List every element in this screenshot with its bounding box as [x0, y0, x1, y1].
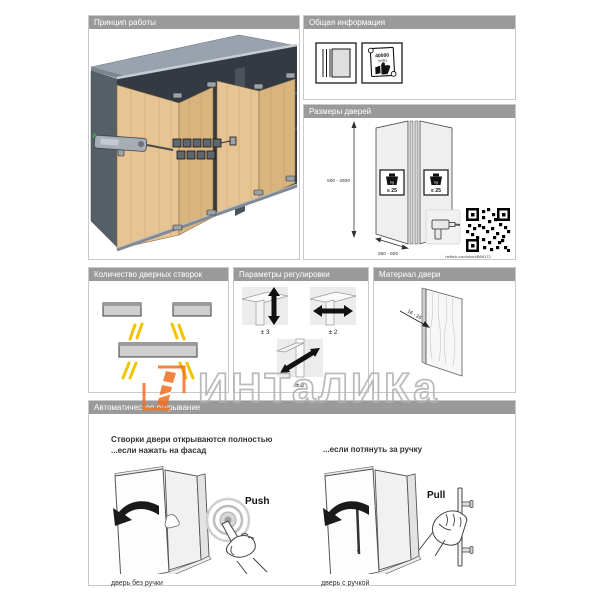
weight-limit-right: ≤ 25: [431, 188, 441, 194]
cabinet-left-side: [91, 71, 117, 247]
qr-code: [466, 208, 510, 252]
panel-principle-title: Принцип работы: [89, 16, 299, 29]
auto-opening-heading: Створки двери открываются полностью ...е…: [111, 434, 273, 456]
certificate-unit: cycles: [378, 58, 388, 63]
width-range-label: 250 - 600: [378, 251, 399, 257]
pivot-marks-top: [130, 324, 184, 339]
panel-door-material: Материал двери 16 - 25: [373, 267, 516, 393]
vertical-adjust-label: ± 3: [261, 329, 270, 336]
push-label: Push: [245, 496, 269, 507]
one-leaf-door: [119, 343, 197, 357]
panel-door-material-title: Материал двери: [374, 268, 515, 281]
catalog-page: Принцип работы: [0, 0, 600, 600]
panel-principle: Принцип работы: [88, 15, 300, 260]
weight-limit-left: ≤ 25: [387, 188, 397, 194]
horizontal-adjust-label: ± 2: [329, 329, 338, 336]
weight-badge-right: kg ≤ 25: [424, 170, 448, 195]
push-illustration: Push: [101, 462, 301, 574]
weight-unit-right: kg: [434, 180, 438, 184]
two-leaf-doors: [103, 303, 211, 316]
horizontal-adjustment: [310, 287, 356, 325]
short-link: hettich.com/short/B68172: [445, 254, 491, 259]
left-folding-door: [117, 85, 213, 249]
panel-leaf-count: Количество дверных створок: [88, 267, 229, 393]
pull-label: Pull: [427, 490, 446, 501]
adjustment-diagram: ± 3 ± 2: [234, 281, 368, 394]
leaf-count-diagram: [89, 281, 228, 392]
door-panel: [422, 288, 462, 376]
heading-line2: ...если нажать на фасад: [111, 445, 273, 456]
vertical-adjustment: [242, 287, 288, 325]
door-material-diagram: 16 - 25: [374, 281, 515, 394]
panel-general-info: Общая информация: [303, 15, 516, 100]
heading-right: ...если потянуть за ручку: [323, 445, 422, 454]
weight-unit-left: kg: [390, 180, 394, 184]
pointing-hand: [222, 521, 267, 574]
catalog-icon: [316, 43, 356, 83]
panel-leaf-count-title: Количество дверных створок: [89, 268, 228, 281]
panel-auto-opening: Автоматическое открывание Створки двери …: [88, 400, 516, 586]
panel-auto-opening-title: Автоматическое открывание: [89, 401, 515, 414]
panel-general-info-title: Общая информация: [304, 16, 515, 29]
cabinet-3d-illustration: [89, 29, 299, 259]
panel-adjustment: Параметры регулировки ± 3: [233, 267, 369, 393]
depth-adjust-label: ± 2: [296, 382, 305, 389]
caption-door-with-handle: дверь с ручкой: [321, 580, 369, 587]
pull-illustration: Pull: [311, 462, 511, 574]
cycles-certificate-icon: 40000 cycles: [362, 43, 402, 83]
panel-door-sizes-title: Размеры дверей: [304, 105, 515, 118]
pivot-marks-bottom: [123, 363, 193, 378]
drill-icon: [426, 210, 460, 244]
general-info-icons: 40000 cycles: [304, 29, 515, 99]
height-range-label: 500 - 2600: [327, 178, 350, 184]
heading-line1: Створки двери открываются полностью: [111, 434, 273, 445]
weight-badge-left: kg ≤ 25: [380, 170, 404, 195]
panel-door-sizes: Размеры дверей 500 - 2600: [303, 104, 516, 260]
height-dimension: 500 - 2600: [327, 121, 356, 238]
door-sizes-diagram: 500 - 2600 kg ≤ 25: [304, 118, 515, 259]
caption-door-without-handle: дверь без ручки: [111, 580, 163, 587]
depth-adjustment: [277, 339, 323, 377]
panel-adjustment-title: Параметры регулировки: [234, 268, 368, 281]
principle-illustration: [89, 29, 299, 259]
